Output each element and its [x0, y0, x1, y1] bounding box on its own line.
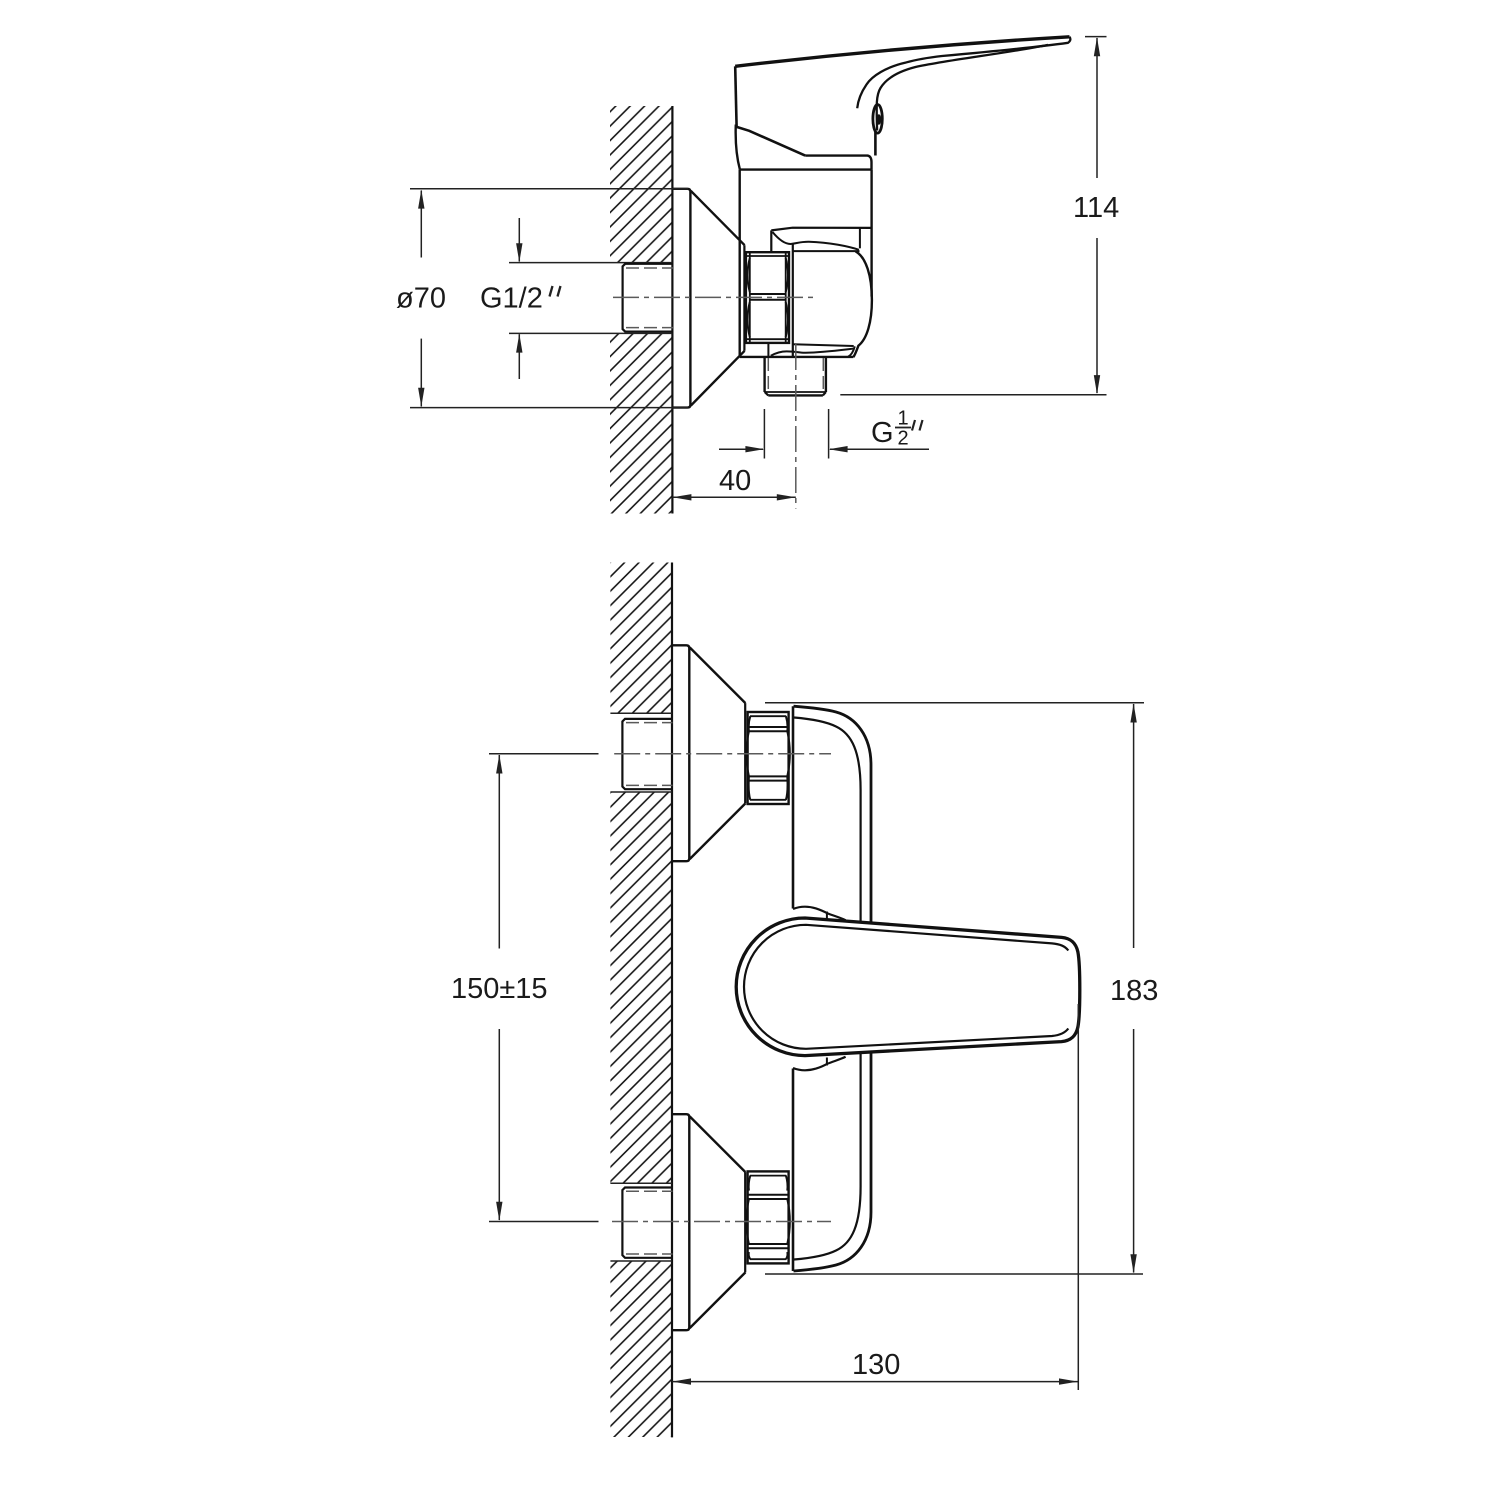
svg-text:130: 130: [852, 1349, 900, 1381]
svg-text:183: 183: [1110, 975, 1158, 1007]
svg-text:1: 1: [898, 408, 909, 430]
svg-text:114: 114: [1073, 192, 1119, 224]
svg-text:G: G: [871, 417, 894, 449]
svg-text:150±15: 150±15: [451, 973, 548, 1005]
svg-text:2: 2: [898, 428, 909, 450]
svg-text:40: 40: [719, 465, 751, 497]
svg-text:ø70: ø70: [396, 283, 446, 315]
svg-text:G1/2: G1/2: [480, 283, 543, 315]
